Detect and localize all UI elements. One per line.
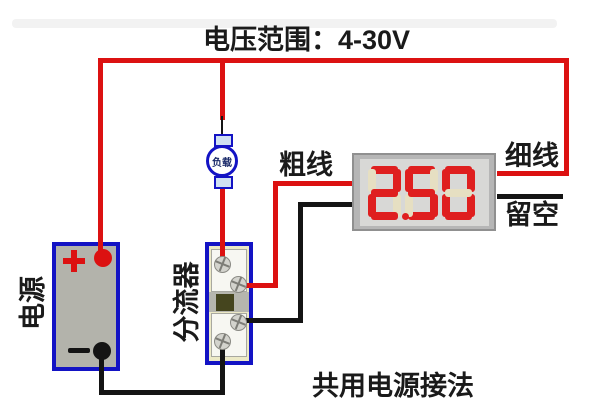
digit bbox=[368, 166, 401, 220]
decimal-point bbox=[402, 213, 409, 220]
wire-load-lead bbox=[221, 116, 223, 136]
caption: 共用电源接法 bbox=[312, 371, 474, 401]
thin-wire-label: 细线 bbox=[505, 141, 559, 171]
load-label: 负载 bbox=[212, 154, 232, 169]
digit bbox=[442, 166, 475, 220]
load-symbol: 负载 bbox=[206, 145, 238, 177]
wire-right-positive bbox=[564, 58, 569, 176]
shunt-screw-icon bbox=[214, 256, 231, 273]
segment bbox=[408, 189, 435, 197]
wire-load-branch bbox=[220, 58, 225, 120]
shunt-screw-icon bbox=[230, 314, 247, 331]
shunt-screw-icon bbox=[230, 276, 247, 293]
segment bbox=[368, 194, 376, 217]
wire-display-negative-h bbox=[300, 202, 355, 207]
wire-thick-positive bbox=[273, 181, 355, 186]
wire-top-positive bbox=[98, 58, 569, 63]
segment bbox=[371, 189, 398, 197]
leave-empty-label: 留空 bbox=[505, 200, 559, 230]
minus-icon bbox=[68, 348, 90, 353]
wire-battery-negative-h bbox=[99, 390, 225, 395]
wire-left-positive bbox=[98, 58, 103, 258]
wire-thin-sense bbox=[497, 171, 567, 176]
segment bbox=[445, 189, 472, 197]
thick-wire-label: 粗线 bbox=[279, 150, 333, 180]
digit bbox=[405, 166, 438, 220]
load-bottom-pad bbox=[214, 176, 233, 189]
wire-shunt-to-display-v bbox=[273, 181, 278, 288]
shunt-label: 分流器 bbox=[172, 257, 202, 347]
wire-leave-empty-stub bbox=[497, 194, 563, 199]
wire-display-negative-v bbox=[298, 202, 303, 323]
battery-negative-terminal bbox=[93, 342, 111, 360]
shunt-resistive-element bbox=[216, 294, 234, 311]
wire-negative-to-shunt bbox=[238, 318, 303, 323]
shunt-screw-icon bbox=[214, 333, 231, 350]
wiring-diagram: 负载 电压范围：4-30V 粗线 细线 留空 分流器 电源 共用电源接法 bbox=[0, 0, 600, 409]
power-source-label: 电源 bbox=[18, 271, 48, 335]
battery-positive-terminal bbox=[94, 249, 112, 267]
segment bbox=[442, 194, 450, 217]
voltage-range-label: 电压范围：4-30V bbox=[203, 25, 410, 55]
plus-icon bbox=[71, 250, 77, 272]
